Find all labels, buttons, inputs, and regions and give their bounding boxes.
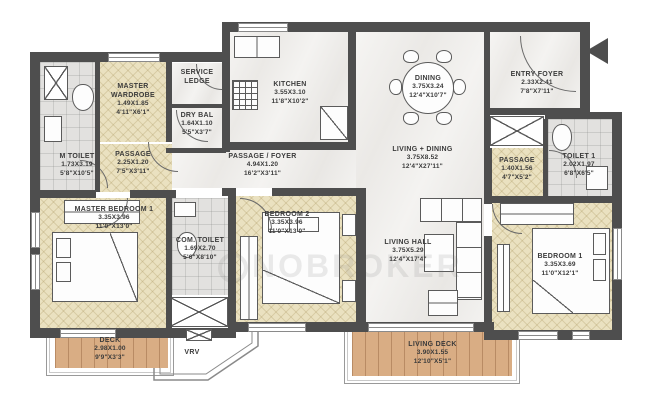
dining-chair — [403, 112, 419, 125]
room-label-master-wardrobe: MASTER WARDROBE 1.49X1.85 4'11"X6'1" — [98, 82, 168, 118]
wall — [545, 112, 622, 119]
washbasin — [174, 202, 196, 217]
sofa — [420, 198, 482, 222]
wall — [222, 142, 356, 150]
bed-fold — [263, 270, 339, 303]
room-label-entry-foyer: ENTRY FOYER 2.33X2.41 7'8"X7'11" — [495, 70, 579, 96]
dining-chair — [436, 112, 452, 125]
shaft-x-icon — [186, 329, 212, 341]
room-label-dining: DINING 3.75X3.24 12'4"X10'7" — [400, 74, 456, 100]
wall — [580, 22, 590, 118]
window — [238, 23, 288, 32]
room-label-living-deck: LIVING DECK 3.90X1.55 12'10"X5'1" — [385, 340, 480, 366]
wall — [484, 32, 490, 112]
window — [248, 323, 306, 332]
room-label-kitchen: KITCHEN 3.55X3.10 11'8"X10'2" — [250, 80, 330, 106]
window — [31, 212, 40, 248]
bed-fold — [533, 280, 573, 313]
room-label-living-hall: LIVING HALL 3.75X5.29 12'4"X17'4" — [368, 238, 448, 264]
wall — [484, 196, 622, 203]
window — [572, 331, 590, 340]
room-label-passage-left: PASSAGE 2.25X1.20 7'5"X3'11" — [98, 150, 168, 176]
kitchen-fridge — [320, 106, 348, 140]
bed-fold — [110, 233, 137, 301]
wall — [348, 22, 356, 142]
side-table — [342, 280, 356, 302]
room-label-deck: DECK 2.98X1.00 9'9"X3'3" — [75, 336, 145, 362]
wc — [72, 84, 94, 111]
room-label-bedroom-1: BEDROOM 1 3.35X3.69 11'0"X12'1" — [518, 252, 602, 278]
wall — [272, 188, 364, 196]
room-label-com-toilet: COM. TOILET 1.69X2.70 5'6"X8'10" — [170, 236, 230, 262]
wall — [166, 104, 226, 108]
room-label-toilet-1: TOILET 1 2.02X1.97 6'8"X6'5" — [548, 152, 610, 178]
shaft-x-icon — [44, 66, 68, 100]
shaft-x-icon — [490, 116, 544, 146]
entry-arrow-icon — [586, 38, 608, 64]
coffee-table — [428, 290, 458, 316]
washbasin — [44, 116, 62, 142]
side-table — [342, 214, 356, 236]
wall — [612, 112, 622, 338]
window — [518, 331, 558, 340]
room-label-vrv: VRV — [174, 348, 210, 357]
kitchen-sink — [234, 36, 280, 58]
window — [613, 228, 622, 280]
pillow — [56, 262, 71, 282]
living-deck-door — [368, 323, 474, 332]
dining-chair — [403, 50, 419, 63]
room-label-living-dining: LIVING + DINING 3.75X8.52 12'4"X27'11" — [375, 145, 470, 171]
pillow — [56, 238, 71, 258]
wall — [30, 190, 96, 198]
floor-plan: NOBROKER MASTER WARDROBE 1.49X1.85 4'11"… — [0, 0, 660, 415]
room-label-dry-bal: DRY BAL 1.64X1.10 5'5"X3'7" — [168, 111, 226, 137]
room-label-master-bedroom-1: MASTER BEDROOM 1 3.35X3.96 11'0"X13'0" — [58, 205, 170, 231]
room-label-passage-right: PASSAGE 1.40X1.56 4'7"X5'2" — [488, 156, 546, 182]
room-label-passage-foyer: PASSAGE / FOYER 4.94X1.20 16'2"X3'11" — [215, 152, 310, 178]
wall — [356, 188, 366, 330]
sofa — [456, 222, 482, 300]
wardrobe — [240, 236, 258, 320]
shaft-x-icon — [170, 297, 228, 327]
tv-unit — [497, 244, 510, 312]
wc — [552, 124, 572, 151]
window — [31, 254, 40, 290]
room-label-service-ledge: SERVICE LEDGE — [170, 68, 224, 86]
room-label-bedroom-2: BEDROOM 2 3.35X3.96 11'0"X13'0" — [242, 210, 332, 236]
dining-chair — [436, 50, 452, 63]
window — [108, 53, 160, 62]
